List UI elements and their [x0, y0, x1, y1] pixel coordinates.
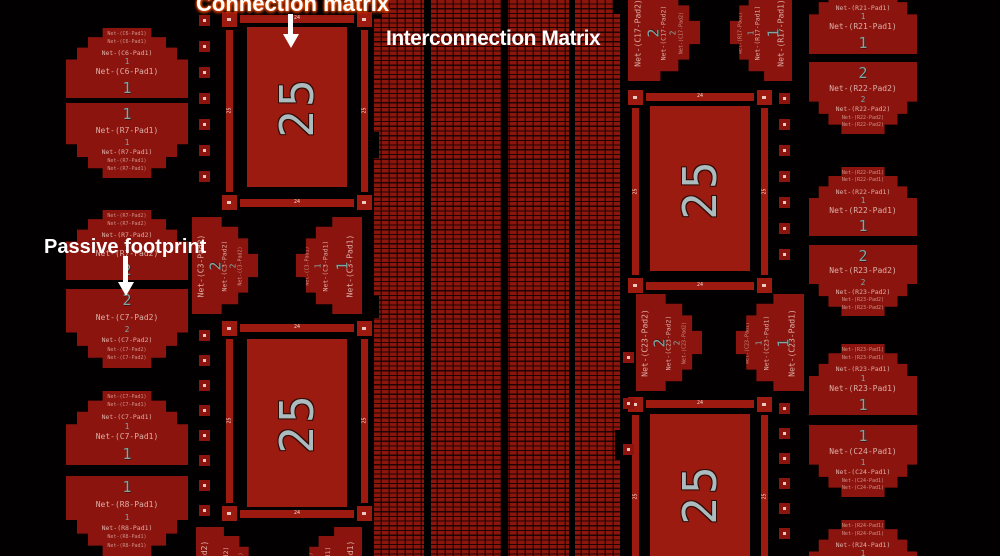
net-label: Net-(R22-Pad2)	[809, 84, 917, 94]
via-pad-dot	[783, 407, 786, 410]
net-label: Net-(C6-Pad1)	[66, 49, 188, 57]
passive-pad-rotated[interactable]: Net-(C3-Pad1)1Net-(C3-Pad1)1Net-(C3-Pad1…	[296, 217, 362, 314]
passive-pad[interactable]: 1Net-(R7-Pad1)1Net-(R7-Pad1)Net-(R7-Pad1…	[66, 103, 188, 178]
pad-number-label: 1	[809, 549, 917, 556]
net-label: Net-(R7-Pad1)	[66, 148, 188, 156]
block-corner-pad[interactable]	[222, 195, 237, 210]
rail-pin-label: 25	[361, 101, 368, 121]
via-pad[interactable]	[623, 444, 634, 455]
block-side-rail[interactable]: 25	[632, 108, 639, 275]
passive-pad-rotated[interactable]: Net-(C4-Pad1)1Net-(C4-Pad1)1Net-(C4-Pad1…	[300, 527, 362, 556]
via-pad[interactable]	[199, 330, 210, 341]
net-label: Net-(R22-Pad2)	[809, 105, 917, 113]
via-pad-dot	[203, 19, 206, 22]
net-label: Net-(R22-Pad1)	[809, 206, 917, 216]
pad-number-label: 1	[809, 35, 917, 51]
via-pad[interactable]	[623, 352, 634, 363]
pad-number-label: 2	[652, 299, 664, 386]
net-label: Net-(R7-Pad1)	[66, 126, 188, 136]
block-side-rail[interactable]: 25	[361, 339, 368, 503]
pad-number-label: 1	[66, 479, 188, 495]
corner-pad-dot	[227, 18, 231, 21]
via-pad-dot	[627, 402, 630, 405]
rail-pin-label: 25	[761, 487, 768, 507]
pad-number-label: 2	[809, 248, 917, 264]
block-corner-pad[interactable]	[628, 90, 643, 105]
via-pad[interactable]	[199, 119, 210, 130]
passive-pad[interactable]: Net-(R21-Pad1)Net-(R21-Pad1)Net-(R21-Pad…	[809, 0, 917, 54]
passive-pad[interactable]: 2Net-(R23-Pad2)2Net-(R23-Pad2)Net-(R23-P…	[809, 245, 917, 316]
block-corner-pad[interactable]	[357, 506, 372, 521]
via-pad[interactable]	[199, 405, 210, 416]
via-pad[interactable]	[199, 455, 210, 466]
block-side-rail[interactable]: 25	[632, 415, 639, 556]
via-pad-dot	[783, 227, 786, 230]
block-side-rail[interactable]: 25	[226, 339, 233, 503]
block-corner-pad[interactable]	[357, 195, 372, 210]
net-label: Net-(R22-Pad1)	[809, 170, 917, 176]
corner-pad-dot	[362, 512, 366, 515]
via-pad[interactable]	[779, 403, 790, 414]
via-pad[interactable]	[779, 528, 790, 539]
pad-number-label: 1	[766, 0, 778, 76]
net-label: Net-(C7-Pad1)	[66, 394, 188, 400]
net-label: Net-(C7-Pad1)	[66, 413, 188, 421]
rail-pin-label: 25	[226, 101, 233, 121]
block-corner-pad[interactable]	[757, 397, 772, 412]
passive-pad[interactable]: 1Net-(R8-Pad1)1Net-(R8-Pad1)Net-(R8-Pad1…	[66, 476, 188, 556]
via-pad-dot	[203, 45, 206, 48]
passive-pad[interactable]: Net-(R23-Pad1)Net-(R23-Pad1)Net-(R23-Pad…	[809, 344, 917, 415]
net-label: Net-(R8-Pad1)	[66, 524, 188, 532]
pad-number-label: 1	[809, 397, 917, 413]
block-side-rail[interactable]: 25	[226, 30, 233, 192]
net-label: Net-(R24-Pad1)	[809, 531, 917, 537]
block-count-label: 25	[274, 323, 320, 523]
pad-number-label: 1	[66, 138, 188, 147]
net-label: Net-(C24-Pad1)	[809, 485, 917, 491]
via-pad-dot	[203, 71, 206, 74]
net-label: Net-(R7-Pad1)	[66, 166, 188, 172]
matrix-edge-notch	[374, 296, 379, 318]
passive-pad-rotated[interactable]: Net-(C23-Pad2)2Net-(C23-Pad2)2Net-(C23-P…	[636, 294, 702, 391]
net-label: Net-(R8-Pad1)	[66, 543, 188, 549]
block-corner-pad[interactable]	[357, 321, 372, 336]
net-label: Net-(R21-Pad1)	[809, 4, 917, 12]
block-side-rail[interactable]: 25	[761, 415, 768, 556]
passive-pad[interactable]: Net-(C6-Pad1)Net-(C6-Pad1)Net-(C6-Pad1)1…	[66, 28, 188, 98]
passive-pad[interactable]: Net-(R22-Pad1)Net-(R22-Pad1)Net-(R22-Pad…	[809, 167, 917, 236]
net-label: Net-(C24-Pad1)	[809, 468, 917, 476]
passive-pad[interactable]: Net-(C7-Pad1)Net-(C7-Pad1)Net-(C7-Pad1)1…	[66, 391, 188, 465]
matrix-edge-notch	[374, 132, 379, 158]
net-label: Net-(R23-Pad2)	[809, 266, 917, 276]
pad-number-label: 1	[334, 222, 346, 309]
via-pad[interactable]	[779, 478, 790, 489]
net-label: Net-(R17-Pad1)	[776, 0, 788, 76]
passive-pad-rotated[interactable]: Net-(C17-Pad2)2Net-(C17-Pad2)2Net-(C17-P…	[628, 0, 700, 81]
pad-number-label: 1	[776, 299, 788, 386]
via-pad[interactable]	[779, 145, 790, 156]
via-pad-dot	[203, 123, 206, 126]
pad-number-label: 1	[809, 196, 917, 205]
interconnection-matrix-region[interactable]	[374, 0, 620, 556]
net-label: Net-(C7-Pad1)	[66, 432, 188, 442]
corner-pad-dot	[227, 201, 231, 204]
via-pad-dot	[783, 201, 786, 204]
rail-pin-label: 25	[226, 411, 233, 431]
passive-pad-rotated[interactable]: Net-(C3-Pad2)2Net-(C3-Pad2)2Net-(C3-Pad2…	[192, 217, 258, 314]
annotation-arrow-down	[288, 14, 293, 34]
net-label: Net-(C7-Pad2)	[66, 313, 188, 323]
rail-pin-label: 25	[632, 487, 639, 507]
corner-pad-dot	[762, 403, 766, 406]
net-label: Net-(R22-Pad2)	[809, 115, 917, 121]
net-label: Net-(R17-Pad1)	[738, 0, 750, 76]
via-pad[interactable]	[779, 249, 790, 260]
via-pad-dot	[783, 432, 786, 435]
net-label: Net-(C7-Pad2)	[66, 347, 188, 353]
net-label: Net-(C3-Pad2)	[237, 222, 249, 309]
corner-pad-dot	[227, 327, 231, 330]
pad-number-label: 2	[809, 65, 917, 81]
via-pad[interactable]	[199, 67, 210, 78]
via-pad-dot	[783, 97, 786, 100]
net-label: Net-(R7-Pad2)	[66, 221, 188, 227]
pad-number-label: 1	[809, 428, 917, 444]
via-pad[interactable]	[779, 171, 790, 182]
block-count-label: 25	[677, 394, 723, 556]
corner-pad-dot	[362, 327, 366, 330]
net-label: Net-(C24-Pad1)	[809, 447, 917, 457]
corner-pad-dot	[762, 284, 766, 287]
corner-pad-dot	[227, 512, 231, 515]
net-label: Net-(C6-Pad1)	[66, 67, 188, 77]
via-pad[interactable]	[199, 430, 210, 441]
block-corner-pad[interactable]	[222, 321, 237, 336]
via-pad[interactable]	[779, 223, 790, 234]
via-pad-dot	[203, 175, 206, 178]
via-pad[interactable]	[779, 503, 790, 514]
net-label: Net-(R22-Pad2)	[809, 122, 917, 128]
via-pad-dot	[203, 484, 206, 487]
matrix-column-separator	[424, 0, 431, 556]
corner-pad-dot	[633, 284, 637, 287]
annotation-interconnection-matrix: Interconnection Matrix	[386, 27, 600, 51]
block-side-rail[interactable]: 25	[761, 108, 768, 275]
net-label: Net-(R22-Pad1)	[809, 177, 917, 183]
block-corner-pad[interactable]	[757, 90, 772, 105]
pad-number-label: 1	[66, 422, 188, 431]
via-pad[interactable]	[779, 119, 790, 130]
via-pad-dot	[783, 507, 786, 510]
net-label: Net-(R23-Pad2)	[809, 305, 917, 311]
net-label: Net-(C7-Pad1)	[66, 402, 188, 408]
pcb-layout-canvas: Connection matrix Interconnection Matrix…	[0, 0, 1000, 556]
rail-pin-label: 25	[632, 181, 639, 201]
pad-number-label: 1	[809, 458, 917, 467]
via-pad[interactable]	[199, 380, 210, 391]
via-pad-dot	[783, 532, 786, 535]
via-pad-dot	[783, 457, 786, 460]
pad-number-label: 2	[646, 0, 658, 76]
net-label: Net-(C17-Pad2)	[678, 0, 690, 76]
via-pad[interactable]	[779, 428, 790, 439]
annotation-arrowhead	[283, 34, 299, 48]
via-pad[interactable]	[199, 355, 210, 366]
net-label: Net-(C17-Pad2)	[634, 0, 646, 76]
net-label: Net-(R24-Pad1)	[809, 541, 917, 549]
pad-number-label: 1	[66, 513, 188, 522]
via-pad[interactable]	[199, 145, 210, 156]
via-pad[interactable]	[779, 453, 790, 464]
matrix-column-separator	[569, 0, 575, 556]
via-pad[interactable]	[199, 93, 210, 104]
net-label: Net-(R23-Pad1)	[809, 347, 917, 353]
pad-number-label: 1	[809, 374, 917, 383]
passive-pad-rotated[interactable]: Net-(R17-Pad1)1Net-(R17-Pad1)1Net-(R17-P…	[730, 0, 792, 81]
net-label: Net-(C4-Pad1)	[308, 532, 320, 556]
matrix-edge-notch	[615, 430, 620, 460]
corner-pad-dot	[762, 96, 766, 99]
corner-pad-dot	[633, 96, 637, 99]
pad-number-label: 1	[66, 446, 188, 462]
block-count-label: 25	[677, 89, 723, 289]
net-label: Net-(R7-Pad2)	[66, 213, 188, 219]
via-pad[interactable]	[199, 41, 210, 52]
passive-pad-rotated[interactable]: Net-(C23-Pad1)1Net-(C23-Pad1)1Net-(C23-P…	[736, 294, 804, 391]
pad-number-label: 1	[336, 532, 348, 556]
rail-pin-label: 25	[361, 411, 368, 431]
passive-pad[interactable]: 1Net-(C24-Pad1)1Net-(C24-Pad1)Net-(C24-P…	[809, 425, 917, 497]
block-corner-pad[interactable]	[222, 506, 237, 521]
block-side-rail[interactable]: 25	[361, 30, 368, 192]
via-pad-dot	[203, 334, 206, 337]
pad-number-label: 1	[66, 80, 188, 96]
via-pad[interactable]	[199, 505, 210, 516]
net-label: Net-(R8-Pad1)	[66, 500, 188, 510]
passive-pad[interactable]: 2Net-(C7-Pad2)2Net-(C7-Pad2)Net-(C7-Pad2…	[66, 289, 188, 368]
annotation-arrowhead	[118, 282, 134, 296]
net-label: Net-(R23-Pad1)	[809, 355, 917, 361]
net-label: Net-(C23-Pad1)	[745, 299, 757, 386]
passive-pad-rotated[interactable]: Net-(C4-Pad2)2Net-(C4-Pad2)2Net-(C4-Pad2…	[196, 527, 258, 556]
pad-number-label: 1	[809, 12, 917, 21]
via-pad-dot	[627, 356, 630, 359]
net-label: Net-(C24-Pad1)	[809, 478, 917, 484]
via-pad-dot	[783, 482, 786, 485]
via-pad[interactable]	[199, 171, 210, 182]
via-pad-dot	[203, 384, 206, 387]
via-pad-dot	[203, 459, 206, 462]
via-pad[interactable]	[623, 398, 634, 409]
corner-pad-dot	[362, 201, 366, 204]
via-pad-dot	[203, 149, 206, 152]
net-label: Net-(R23-Pad1)	[809, 365, 917, 373]
via-pad-dot	[783, 175, 786, 178]
passive-pad[interactable]: Net-(R24-Pad1)Net-(R24-Pad1)Net-(R24-Pad…	[809, 520, 917, 556]
pad-number-label: 2	[66, 325, 188, 334]
net-label: Net-(R21-Pad1)	[809, 22, 917, 32]
via-pad-dot	[203, 434, 206, 437]
net-label: Net-(R23-Pad2)	[809, 297, 917, 303]
via-pad-dot	[203, 359, 206, 362]
block-corner-pad[interactable]	[757, 278, 772, 293]
net-label: Net-(C4-Pad2)	[238, 532, 250, 556]
via-pad-dot	[203, 97, 206, 100]
annotation-arrow-down	[123, 256, 128, 282]
rail-pin-label: 25	[761, 181, 768, 201]
via-pad-dot	[783, 123, 786, 126]
via-pad-dot	[203, 409, 206, 412]
matrix-column-separator	[501, 0, 508, 556]
via-pad[interactable]	[779, 93, 790, 104]
via-pad-dot	[783, 253, 786, 256]
net-label: Net-(C23-Pad2)	[681, 299, 693, 386]
via-pad[interactable]	[779, 197, 790, 208]
pad-number-label: 2	[809, 95, 917, 104]
net-label: Net-(C6-Pad1)	[66, 39, 188, 45]
corner-pad-dot	[362, 18, 366, 21]
net-label: Net-(R7-Pad1)	[66, 158, 188, 164]
via-pad-dot	[783, 149, 786, 152]
net-label: Net-(R24-Pad1)	[809, 523, 917, 529]
via-pad-dot	[203, 509, 206, 512]
pad-number-label: 1	[66, 57, 188, 66]
via-pad-dot	[627, 448, 630, 451]
passive-pad[interactable]: 2Net-(R22-Pad2)2Net-(R22-Pad2)Net-(R22-P…	[809, 62, 917, 134]
net-label: Net-(C3-Pad1)	[305, 222, 317, 309]
net-label: Net-(C6-Pad1)	[66, 31, 188, 37]
pad-number-label: 2	[208, 222, 220, 309]
net-label: Net-(C7-Pad2)	[66, 336, 188, 344]
pad-number-label: 1	[809, 218, 917, 234]
pad-number-label: 2	[210, 532, 222, 556]
net-label: Net-(R22-Pad1)	[809, 188, 917, 196]
via-pad[interactable]	[199, 480, 210, 491]
matrix-edge-notch	[613, 0, 620, 14]
net-label: Net-(C7-Pad2)	[66, 355, 188, 361]
net-label: Net-(R23-Pad2)	[809, 288, 917, 296]
net-label: Net-(R8-Pad1)	[66, 534, 188, 540]
block-corner-pad[interactable]	[628, 278, 643, 293]
pad-number-label: 1	[66, 106, 188, 122]
net-label: Net-(R23-Pad1)	[809, 384, 917, 394]
pad-number-label: 2	[809, 278, 917, 287]
